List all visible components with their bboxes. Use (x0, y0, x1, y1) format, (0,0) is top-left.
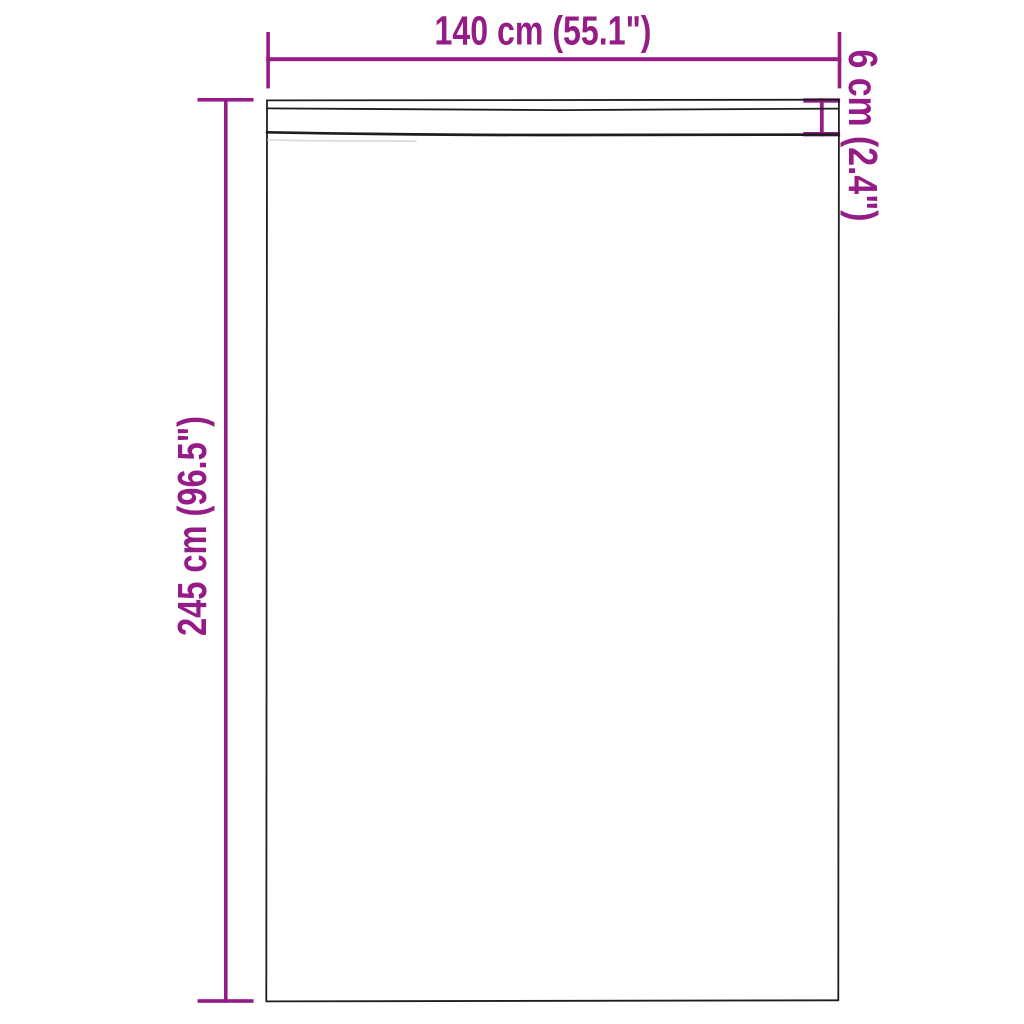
svg-text:6 cm (2.4"): 6 cm (2.4") (840, 50, 886, 222)
svg-text:140 cm (55.1"): 140 cm (55.1") (435, 8, 652, 54)
svg-text:245 cm (96.5"): 245 cm (96.5") (169, 416, 215, 636)
